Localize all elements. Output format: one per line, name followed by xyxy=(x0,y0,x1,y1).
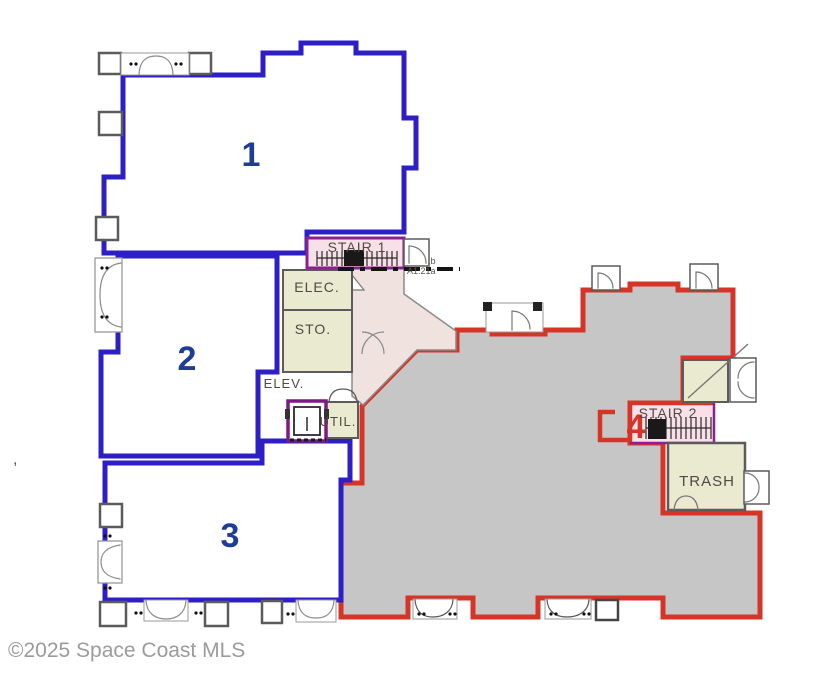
door-symbol xyxy=(404,239,429,266)
floor-plan-svg: A1.21b A1.21a xyxy=(0,0,834,684)
window-symbol xyxy=(100,602,126,626)
door-symbol xyxy=(592,266,620,290)
floor-plan-page: A1.21b A1.21a xyxy=(0,0,834,684)
window-symbol xyxy=(189,53,211,74)
stair-2-landing xyxy=(648,419,666,439)
french-door-symbol xyxy=(296,600,336,622)
elec-label: ELEC. xyxy=(294,279,339,295)
double-door-symbol xyxy=(730,358,756,402)
unit-1-number: 1 xyxy=(242,136,261,174)
util-label: UTIL. xyxy=(320,414,357,429)
sto-room xyxy=(283,310,352,372)
sto-label: STO. xyxy=(295,321,331,337)
section-label-bottom: A1.21a xyxy=(407,266,436,276)
french-door-symbol xyxy=(144,600,188,621)
window-symbol xyxy=(205,602,228,626)
unit-3-number: 3 xyxy=(221,517,240,555)
stair-1-label: STAIR 1 xyxy=(328,239,387,255)
stray-mark: , xyxy=(13,451,17,468)
trash-label: TRASH xyxy=(679,473,735,490)
stair-2-label: STAIR 2 xyxy=(639,405,698,421)
window-symbol xyxy=(96,217,118,240)
elev-label: ELEV. xyxy=(264,376,305,391)
watermark-text: ©2025 Space Coast MLS xyxy=(8,639,245,662)
unit-2-number: 2 xyxy=(178,340,197,378)
window-symbol xyxy=(100,504,122,527)
french-door-symbol xyxy=(545,599,591,619)
window-symbol xyxy=(99,112,122,135)
door-symbol xyxy=(596,600,618,620)
door-symbol xyxy=(262,601,282,623)
window-symbol xyxy=(99,53,121,74)
door-symbol xyxy=(690,264,718,290)
double-door-symbol xyxy=(744,471,769,504)
